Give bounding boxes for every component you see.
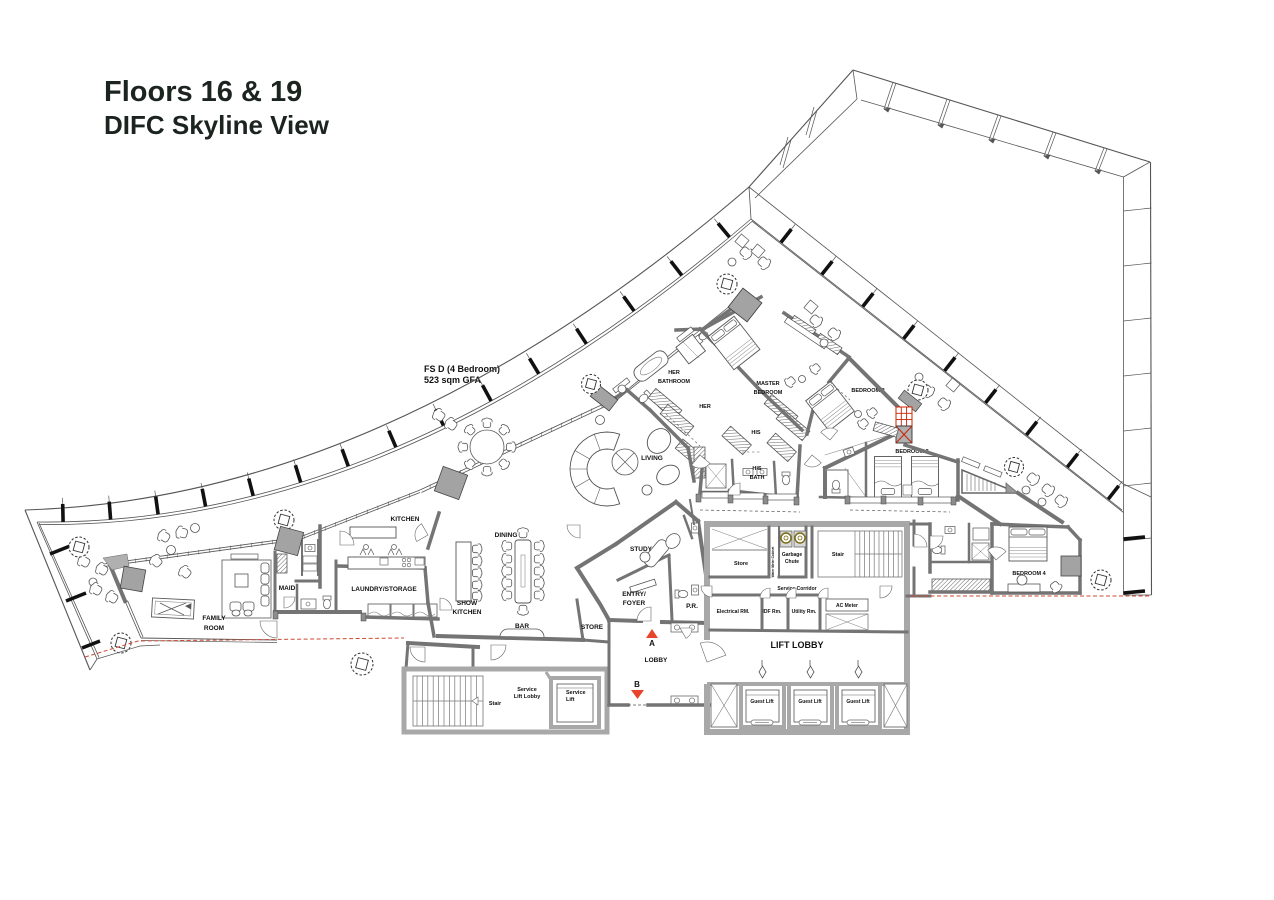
svg-text:KITCHEN: KITCHEN	[453, 609, 482, 616]
svg-text:Guest Lift: Guest Lift	[846, 699, 870, 705]
svg-text:MAID: MAID	[279, 585, 296, 592]
svg-text:Floors 16 & 19: Floors 16 & 19	[104, 76, 302, 108]
svg-text:AC Meter: AC Meter	[836, 603, 858, 609]
svg-text:Lift: Lift	[566, 697, 575, 703]
svg-text:Electrical RM.: Electrical RM.	[717, 609, 750, 615]
svg-text:FOYER: FOYER	[623, 600, 646, 607]
svg-text:HER: HER	[699, 404, 711, 410]
svg-text:ROOM: ROOM	[204, 625, 224, 632]
svg-text:STORE: STORE	[581, 624, 604, 631]
svg-text:BEDROOM 4: BEDROOM 4	[1012, 571, 1046, 577]
svg-text:LIVING: LIVING	[641, 455, 663, 462]
svg-text:BATH: BATH	[750, 475, 765, 481]
svg-text:523 sqm GFA: 523 sqm GFA	[424, 375, 482, 385]
svg-text:ENTRY/: ENTRY/	[622, 591, 646, 598]
svg-text:Stair: Stair	[489, 701, 502, 707]
svg-text:Chute: Chute	[785, 559, 799, 565]
svg-text:B: B	[634, 680, 640, 689]
svg-text:HER: HER	[668, 370, 680, 376]
svg-text:BAR: BAR	[515, 623, 529, 630]
svg-text:DIFC Skyline View: DIFC Skyline View	[104, 110, 330, 140]
svg-text:HIS: HIS	[751, 430, 761, 436]
svg-text:FAMILY: FAMILY	[202, 615, 226, 622]
svg-text:LAUNDRY/STORAGE: LAUNDRY/STORAGE	[351, 586, 417, 593]
svg-text:P.R.: P.R.	[686, 603, 698, 610]
svg-text:Stair: Stair	[832, 552, 845, 558]
svg-text:LOBBY: LOBBY	[645, 657, 668, 664]
svg-text:Utility Rm.: Utility Rm.	[792, 609, 817, 615]
svg-text:Service: Service	[517, 687, 537, 693]
svg-text:BEDROOM: BEDROOM	[754, 390, 783, 396]
svg-text:LIFT LOBBY: LIFT LOBBY	[771, 640, 824, 650]
svg-text:A: A	[649, 639, 655, 648]
svg-text:Guest Lift: Guest Lift	[798, 699, 822, 705]
svg-text:Service Corridor: Service Corridor	[777, 586, 816, 592]
svg-text:BATHROOM: BATHROOM	[658, 379, 690, 385]
svg-text:IDF Rm.: IDF Rm.	[763, 609, 783, 615]
svg-text:KITCHEN: KITCHEN	[391, 516, 420, 523]
svg-text:STUDY: STUDY	[630, 546, 653, 553]
svg-text:Lift Lobby: Lift Lobby	[514, 694, 542, 700]
svg-text:DINING: DINING	[495, 532, 518, 539]
svg-text:Garbage: Garbage	[782, 552, 803, 558]
svg-text:Water Meter Cabinet: Water Meter Cabinet	[771, 546, 775, 578]
svg-text:Store: Store	[734, 561, 748, 567]
svg-text:HIS: HIS	[752, 466, 762, 472]
svg-text:SHOW: SHOW	[457, 600, 478, 607]
svg-text:MASTER: MASTER	[756, 381, 779, 387]
svg-text:Service: Service	[566, 690, 586, 696]
svg-text:Guest Lift: Guest Lift	[750, 699, 774, 705]
